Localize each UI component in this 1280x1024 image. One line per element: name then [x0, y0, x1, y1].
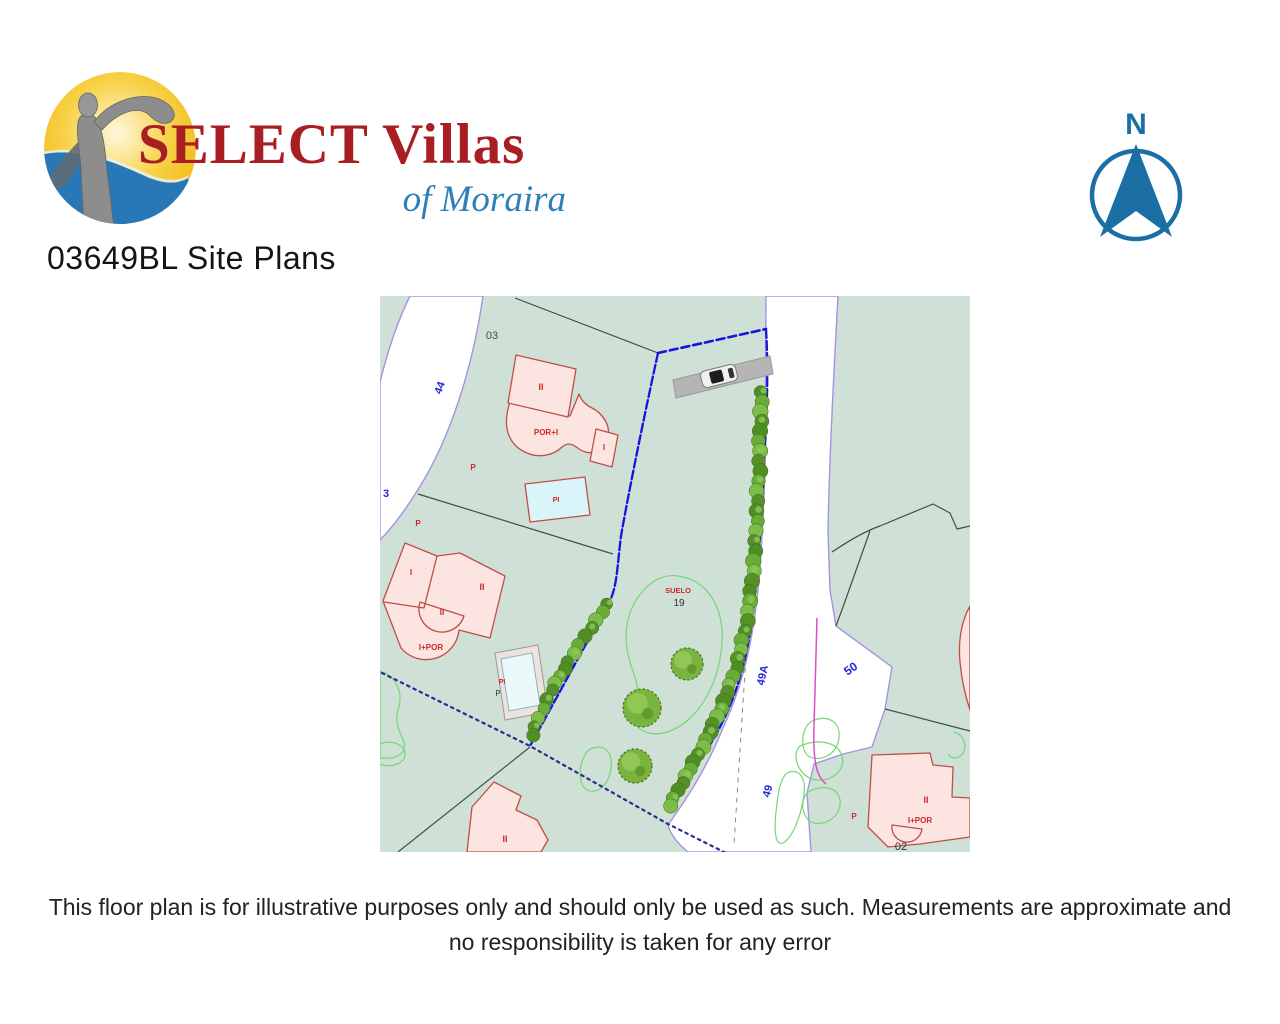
plan-label-p2: P — [415, 519, 421, 528]
compass-north-label: N — [1125, 108, 1147, 141]
site-plan: 03 44 3 P P II POR+I I PI I II II I+POR … — [380, 296, 970, 852]
plan-label-pool2-p: P — [495, 689, 500, 698]
compass-north-indicator: N — [1086, 100, 1186, 250]
plan-label-road3: 3 — [383, 488, 389, 500]
plan-label-suelo: SUELO — [665, 586, 691, 595]
brand-tagline: of Moraira — [296, 178, 566, 221]
plan-label-b3-ii: II — [502, 834, 507, 844]
plan-label-pool1: PI — [553, 497, 560, 504]
plan-label-b2-i: I — [410, 568, 412, 577]
plan-label-p1: P — [470, 463, 476, 472]
plan-label-b1-storeys: II — [538, 382, 543, 392]
plan-label-b2-ii2: II — [440, 608, 444, 617]
plan-label-pool2-pi: PI — [499, 679, 506, 686]
plan-label-plot19: 19 — [673, 598, 685, 609]
brand-name: SELECT Villas — [138, 112, 525, 177]
plan-label-plot02: 02 — [895, 841, 907, 852]
plan-label-b1-por: POR+I — [534, 428, 558, 437]
plan-label-b1-out: I — [603, 443, 605, 452]
page: SELECT Villas of Moraira 03649BL Site Pl… — [0, 0, 1280, 1024]
page-title: 03649BL Site Plans — [47, 240, 336, 277]
plan-label-plot03: 03 — [486, 330, 498, 342]
plan-label-b2-ipor: I+POR — [419, 643, 443, 652]
disclaimer-text: This floor plan is for illustrative purp… — [45, 890, 1235, 960]
plan-label-b4-ii: II — [923, 795, 928, 805]
site-plan-drawing: 03 44 3 P P II POR+I I PI I II II I+POR … — [380, 296, 970, 852]
plan-label-p3: P — [851, 812, 857, 821]
plan-label-b2-ii: II — [479, 582, 484, 592]
plan-label-b4-ipor: I+POR — [908, 816, 932, 825]
